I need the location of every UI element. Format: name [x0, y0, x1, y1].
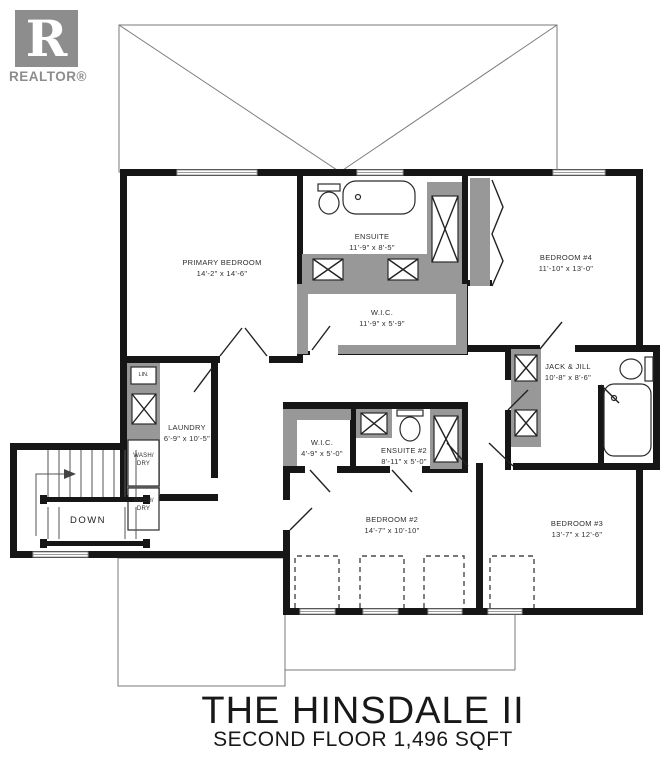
room-label-laundry: LAUNDRY 6'-9" x 10'-5": [164, 423, 210, 444]
room-name: W.I.C.: [359, 308, 405, 319]
dormer-dashed-boxes: [295, 556, 534, 608]
door-icon: [194, 368, 212, 392]
bifold-door-icon: [492, 180, 503, 286]
room-label-bedroom4: BEDROOM #4 11'-10" x 13'-0": [539, 253, 594, 274]
door-icon: [220, 328, 242, 356]
room-dims: 11'-9" x 8'-5": [349, 243, 395, 254]
linen-label: LIN.: [138, 372, 148, 380]
sink-icon: [515, 410, 537, 436]
window: [488, 609, 522, 614]
door-icon: [312, 326, 330, 350]
room-name: BEDROOM #2: [364, 515, 419, 526]
vanity-counter: [511, 349, 541, 447]
roof-outline: [118, 25, 557, 686]
floorplan-page: R REALTOR®: [0, 0, 667, 765]
window: [357, 170, 403, 175]
window: [363, 609, 398, 614]
room-label-ensuite: ENSUITE 11'-9" x 8'-5": [349, 232, 395, 253]
room-label-jack-and-jill: JACK & JILL 10'-8" x 8'-6": [545, 362, 591, 383]
room-dims: 4'-9" x 5'-0": [301, 449, 343, 460]
exterior-walls: [10, 169, 660, 615]
door-icon: [290, 508, 312, 530]
room-dims: 14'-2" x 14'-6": [182, 269, 261, 280]
bathtub-icon: [343, 181, 415, 214]
room-name: ENSUITE #2: [381, 446, 427, 457]
room-label-bedroom2: BEDROOM #2 14'-7" x 10'-10": [364, 515, 419, 536]
sink-icon: [132, 394, 156, 424]
washer-dryer-label: WASH/ DRY: [133, 452, 153, 469]
room-name: W.I.C.: [301, 438, 343, 449]
stairs-down-label: DOWN: [70, 514, 106, 527]
room-name: LAUNDRY: [164, 423, 210, 434]
plan-subtitle: SECOND FLOOR 1,496 SQFT: [213, 728, 513, 752]
room-dims: 14'-7" x 10'-10": [364, 526, 419, 537]
room-label-wic: W.I.C. 11'-9" x 5'-9": [359, 308, 405, 329]
room-dims: 11'-9" x 5'-9": [359, 319, 405, 330]
room-name: BEDROOM #3: [551, 519, 603, 530]
room-label-bedroom3: BEDROOM #3 13'-7" x 12'-6": [551, 519, 603, 540]
room-label-wic2: W.I.C. 4'-9" x 5'-0": [301, 438, 343, 459]
door-icon: [392, 470, 412, 492]
room-name: BEDROOM #4: [539, 253, 594, 264]
washer-dryer-label: WASH/ DRY: [133, 497, 153, 514]
bedroom4-closet: [470, 178, 503, 286]
window: [300, 609, 335, 614]
room-dims: 10'-8" x 8'-6": [545, 373, 591, 384]
shower-icon: [427, 182, 462, 284]
plan-title: THE HINSDALE II: [201, 690, 524, 733]
sink-icon: [356, 409, 392, 438]
room-label-ensuite2: ENSUITE #2 8'-11" x 5'-0": [381, 446, 427, 467]
room-dims: 6'-9" x 10'-5": [164, 434, 210, 445]
door-icon: [540, 322, 562, 349]
room-name: JACK & JILL: [545, 362, 591, 373]
door-icon: [310, 470, 330, 492]
sink-icon: [515, 355, 537, 381]
toilet-icon: [620, 357, 653, 381]
vanity-counter: [302, 254, 432, 284]
shower-icon: [430, 409, 462, 469]
toilet-icon: [318, 184, 340, 214]
window: [177, 170, 257, 175]
door-icon: [245, 328, 267, 356]
room-label-primary-bedroom: PRIMARY BEDROOM 14'-2" x 14'-6": [182, 258, 261, 279]
room-name: ENSUITE: [349, 232, 395, 243]
window: [553, 170, 605, 175]
room-name: PRIMARY BEDROOM: [182, 258, 261, 269]
toilet-icon: [397, 410, 423, 441]
sink-icon: [388, 259, 418, 280]
sink-icon: [313, 259, 343, 280]
room-dims: 13'-7" x 12'-6": [551, 530, 603, 541]
window: [33, 552, 88, 557]
room-dims: 8'-11" x 5'-0": [381, 457, 427, 468]
window: [428, 609, 462, 614]
room-dims: 11'-10" x 13'-0": [539, 264, 594, 275]
